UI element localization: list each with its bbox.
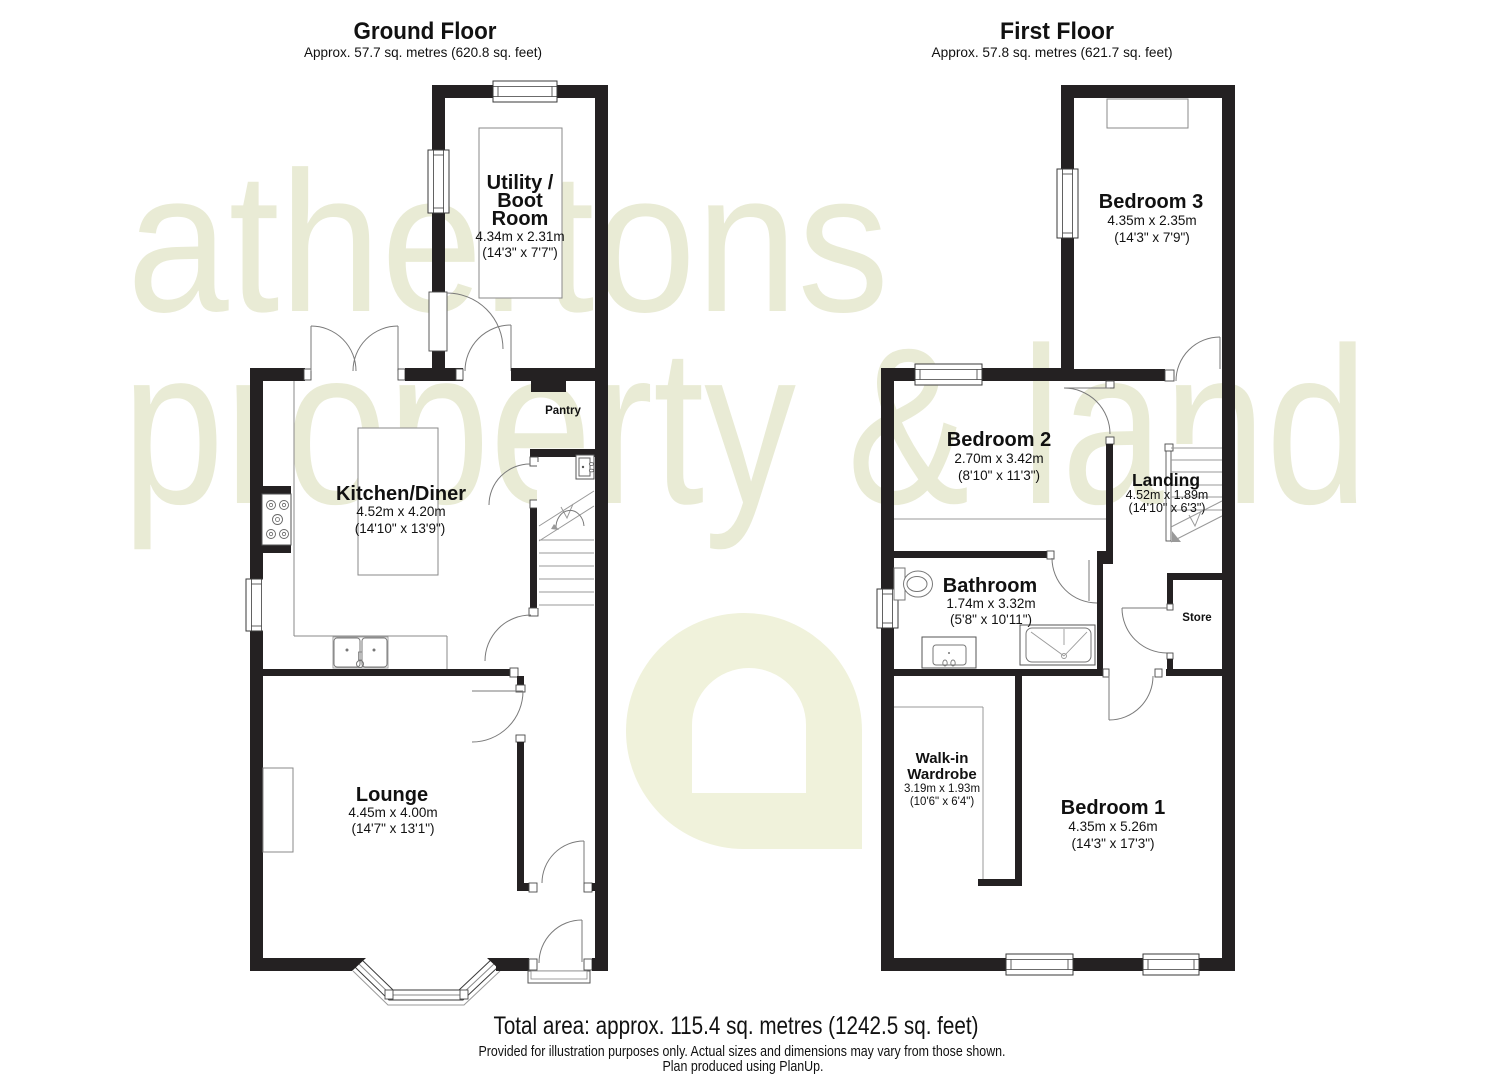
svg-text:Plan produced using PlanUp.: Plan produced using PlanUp.: [663, 1059, 824, 1075]
svg-text:First Floor: First Floor: [1000, 18, 1114, 45]
svg-text:Bedroom 2: Bedroom 2: [947, 429, 1051, 451]
svg-text:(5'8" x 10'11"): (5'8" x 10'11"): [950, 612, 1032, 627]
svg-text:(14'7" x 13'1"): (14'7" x 13'1"): [351, 821, 434, 836]
svg-text:4.35m x 5.26m: 4.35m x 5.26m: [1068, 819, 1157, 834]
svg-text:2.70m x 3.42m: 2.70m x 3.42m: [954, 451, 1043, 466]
svg-text:Landing: Landing: [1132, 470, 1200, 490]
svg-text:Kitchen/Diner: Kitchen/Diner: [336, 483, 466, 505]
svg-text:Provided for illustration purp: Provided for illustration purposes only.…: [479, 1044, 1006, 1060]
svg-text:Walk-in: Walk-in: [916, 750, 969, 767]
svg-text:Approx. 57.8 sq. metres (621.7: Approx. 57.8 sq. metres (621.7 sq. feet): [932, 44, 1173, 60]
svg-text:(14'3" x 7'9"): (14'3" x 7'9"): [1114, 230, 1190, 245]
svg-text:Bedroom 3: Bedroom 3: [1099, 191, 1203, 213]
svg-text:3.19m x 1.93m: 3.19m x 1.93m: [904, 783, 980, 795]
svg-text:Ground Floor: Ground Floor: [354, 18, 497, 45]
svg-text:Total area: approx. 115.4 sq.: Total area: approx. 115.4 sq. metres (12…: [494, 1012, 979, 1040]
svg-text:Wardrobe: Wardrobe: [907, 766, 976, 783]
svg-text:Room: Room: [492, 208, 549, 230]
svg-text:Bathroom: Bathroom: [943, 575, 1037, 597]
svg-text:(14'3" x 17'3"): (14'3" x 17'3"): [1071, 836, 1154, 851]
svg-text:4.35m x 2.35m: 4.35m x 2.35m: [1107, 213, 1196, 228]
svg-text:Store: Store: [1182, 612, 1211, 624]
svg-text:4.34m x 2.31m: 4.34m x 2.31m: [475, 229, 564, 244]
svg-text:(10'6" x 6'4"): (10'6" x 6'4"): [910, 796, 975, 808]
svg-text:(14'10" x 13'9"): (14'10" x 13'9"): [355, 521, 446, 536]
svg-text:Bedroom 1: Bedroom 1: [1061, 797, 1165, 819]
svg-text:Pantry: Pantry: [545, 405, 581, 417]
svg-text:4.52m x 4.20m: 4.52m x 4.20m: [356, 504, 445, 519]
svg-text:(8'10" x 11'3"): (8'10" x 11'3"): [958, 468, 1040, 483]
svg-text:1.74m x 3.32m: 1.74m x 3.32m: [946, 596, 1035, 611]
svg-text:Approx. 57.7 sq. metres (620.8: Approx. 57.7 sq. metres (620.8 sq. feet): [304, 44, 542, 60]
svg-text:4.52m x 1.89m: 4.52m x 1.89m: [1126, 488, 1209, 502]
svg-text:(14'10" x 6'3"): (14'10" x 6'3"): [1129, 501, 1206, 515]
svg-text:(14'3" x 7'7"): (14'3" x 7'7"): [482, 245, 558, 260]
svg-text:4.45m x 4.00m: 4.45m x 4.00m: [348, 805, 437, 820]
svg-text:Lounge: Lounge: [356, 784, 428, 806]
